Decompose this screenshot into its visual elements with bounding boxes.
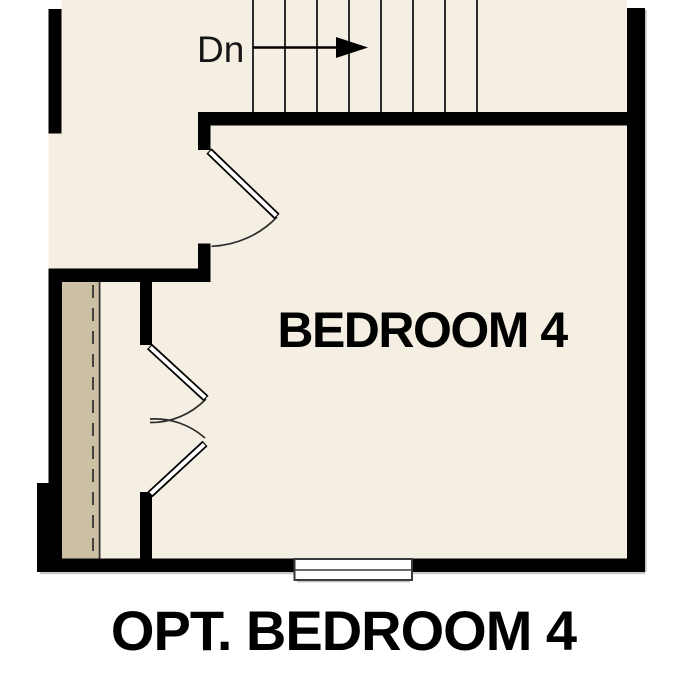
floor-plan: Dn BEDROOM 4 OPT. BEDROOM 4 bbox=[0, 0, 687, 687]
plan-caption: OPT. BEDROOM 4 bbox=[0, 603, 687, 659]
room-name-label: BEDROOM 4 bbox=[246, 305, 598, 355]
wall-right bbox=[627, 8, 645, 572]
wall-hall bbox=[49, 269, 211, 283]
floor-main bbox=[49, 10, 646, 572]
window bbox=[295, 559, 413, 583]
closet-floor-strip bbox=[62, 282, 100, 559]
wall-below-stairs bbox=[198, 112, 627, 126]
closet-wall-upper-stub bbox=[140, 281, 152, 345]
floor-area bbox=[49, 0, 646, 572]
wall-top-left bbox=[49, 9, 62, 134]
wall-left-lower bbox=[49, 269, 63, 573]
closet bbox=[62, 282, 100, 559]
shadow-right bbox=[645, 10, 647, 572]
door-jamb-top bbox=[198, 112, 211, 150]
stairs-down-label: Dn bbox=[197, 31, 244, 68]
